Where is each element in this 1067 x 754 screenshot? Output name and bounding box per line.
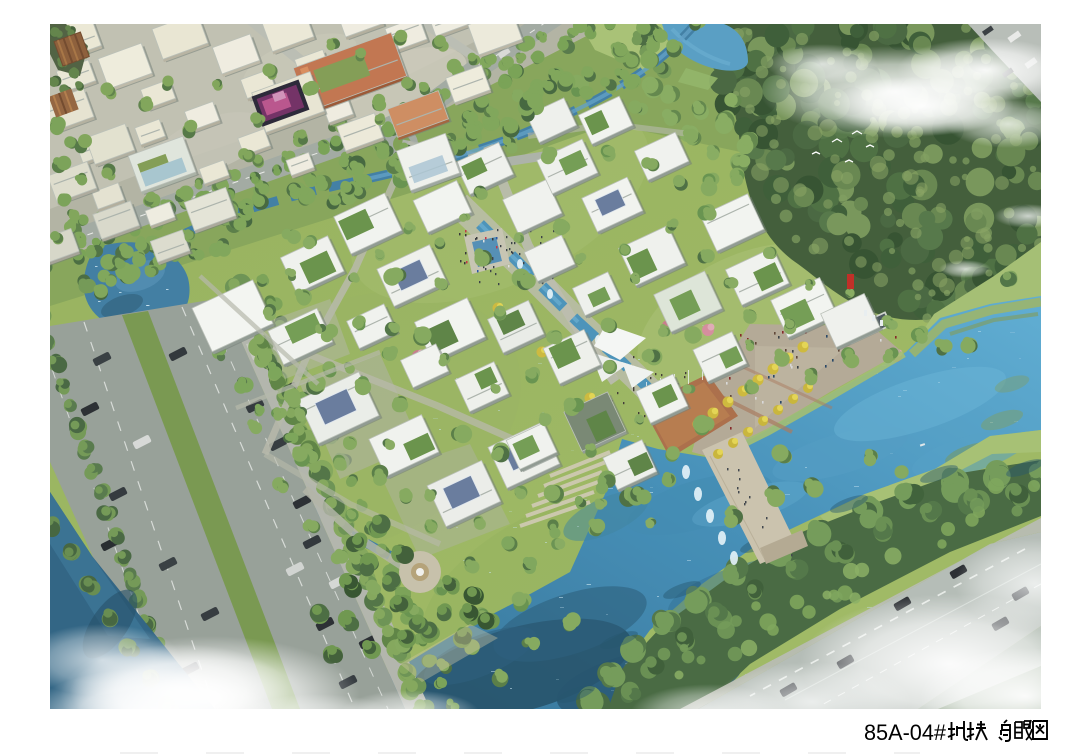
svg-text:85A-04#: 85A-04#: [864, 720, 947, 745]
